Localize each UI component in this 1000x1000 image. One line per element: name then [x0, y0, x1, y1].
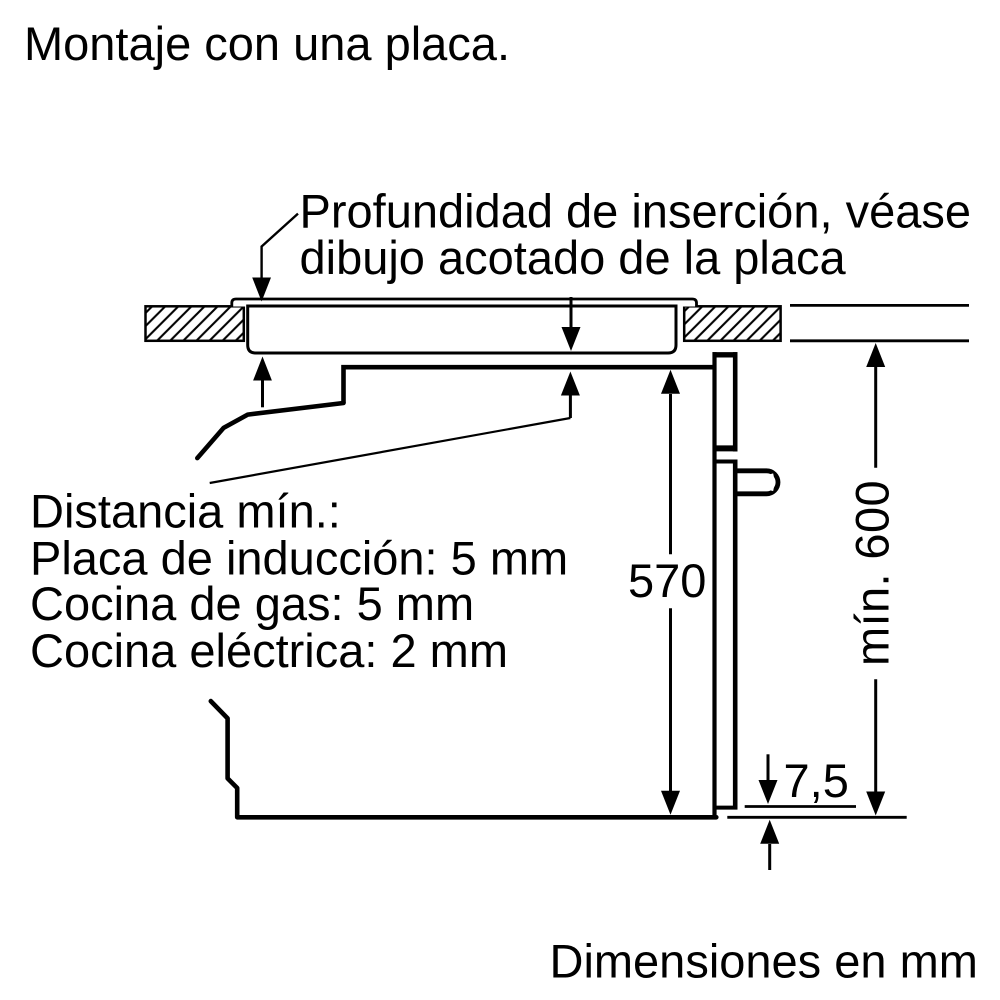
svg-text:Cocina eléctrica: 2 mm: Cocina eléctrica: 2 mm — [30, 624, 508, 677]
svg-text:Profundidad de inserción, véas: Profundidad de inserción, véase — [300, 185, 972, 238]
svg-text:Montaje con una placa.: Montaje con una placa. — [24, 17, 510, 70]
svg-text:dibujo acotado de la placa: dibujo acotado de la placa — [300, 231, 847, 284]
svg-text:Dimensiones en mm: Dimensiones en mm — [550, 935, 978, 988]
svg-text:Distancia mín.:: Distancia mín.: — [30, 485, 341, 538]
svg-text:mín. 600: mín. 600 — [846, 480, 899, 666]
svg-text:Cocina de gas: 5 mm: Cocina de gas: 5 mm — [30, 577, 474, 630]
svg-text:7,5: 7,5 — [784, 754, 849, 807]
svg-text:570: 570 — [628, 554, 706, 607]
